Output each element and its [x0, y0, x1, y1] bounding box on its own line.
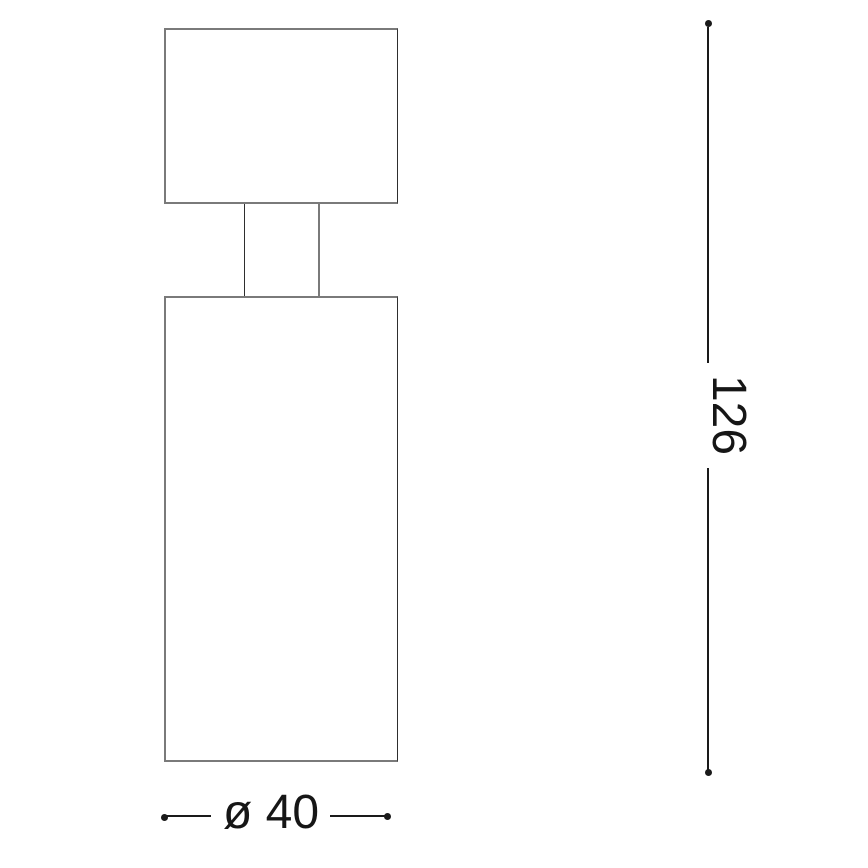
- height-dimension-label: 126: [704, 375, 752, 455]
- diameter-dimension-line-right: [330, 815, 386, 817]
- diameter-dimension-label: ø 40: [223, 789, 319, 837]
- height-dimension-line-lower: [707, 468, 709, 770]
- lamp-head-outline: [164, 28, 398, 204]
- diameter-dimension-line-left: [166, 815, 211, 817]
- lamp-body-outline: [164, 296, 398, 762]
- height-dimension-top-dot: [705, 20, 712, 27]
- technical-drawing-canvas: 126 ø 40: [0, 0, 868, 868]
- lamp-neck-outline: [244, 204, 320, 296]
- height-dimension-bottom-dot: [705, 769, 712, 776]
- diameter-dimension-right-dot: [384, 813, 391, 820]
- height-dimension-line-upper: [707, 27, 709, 363]
